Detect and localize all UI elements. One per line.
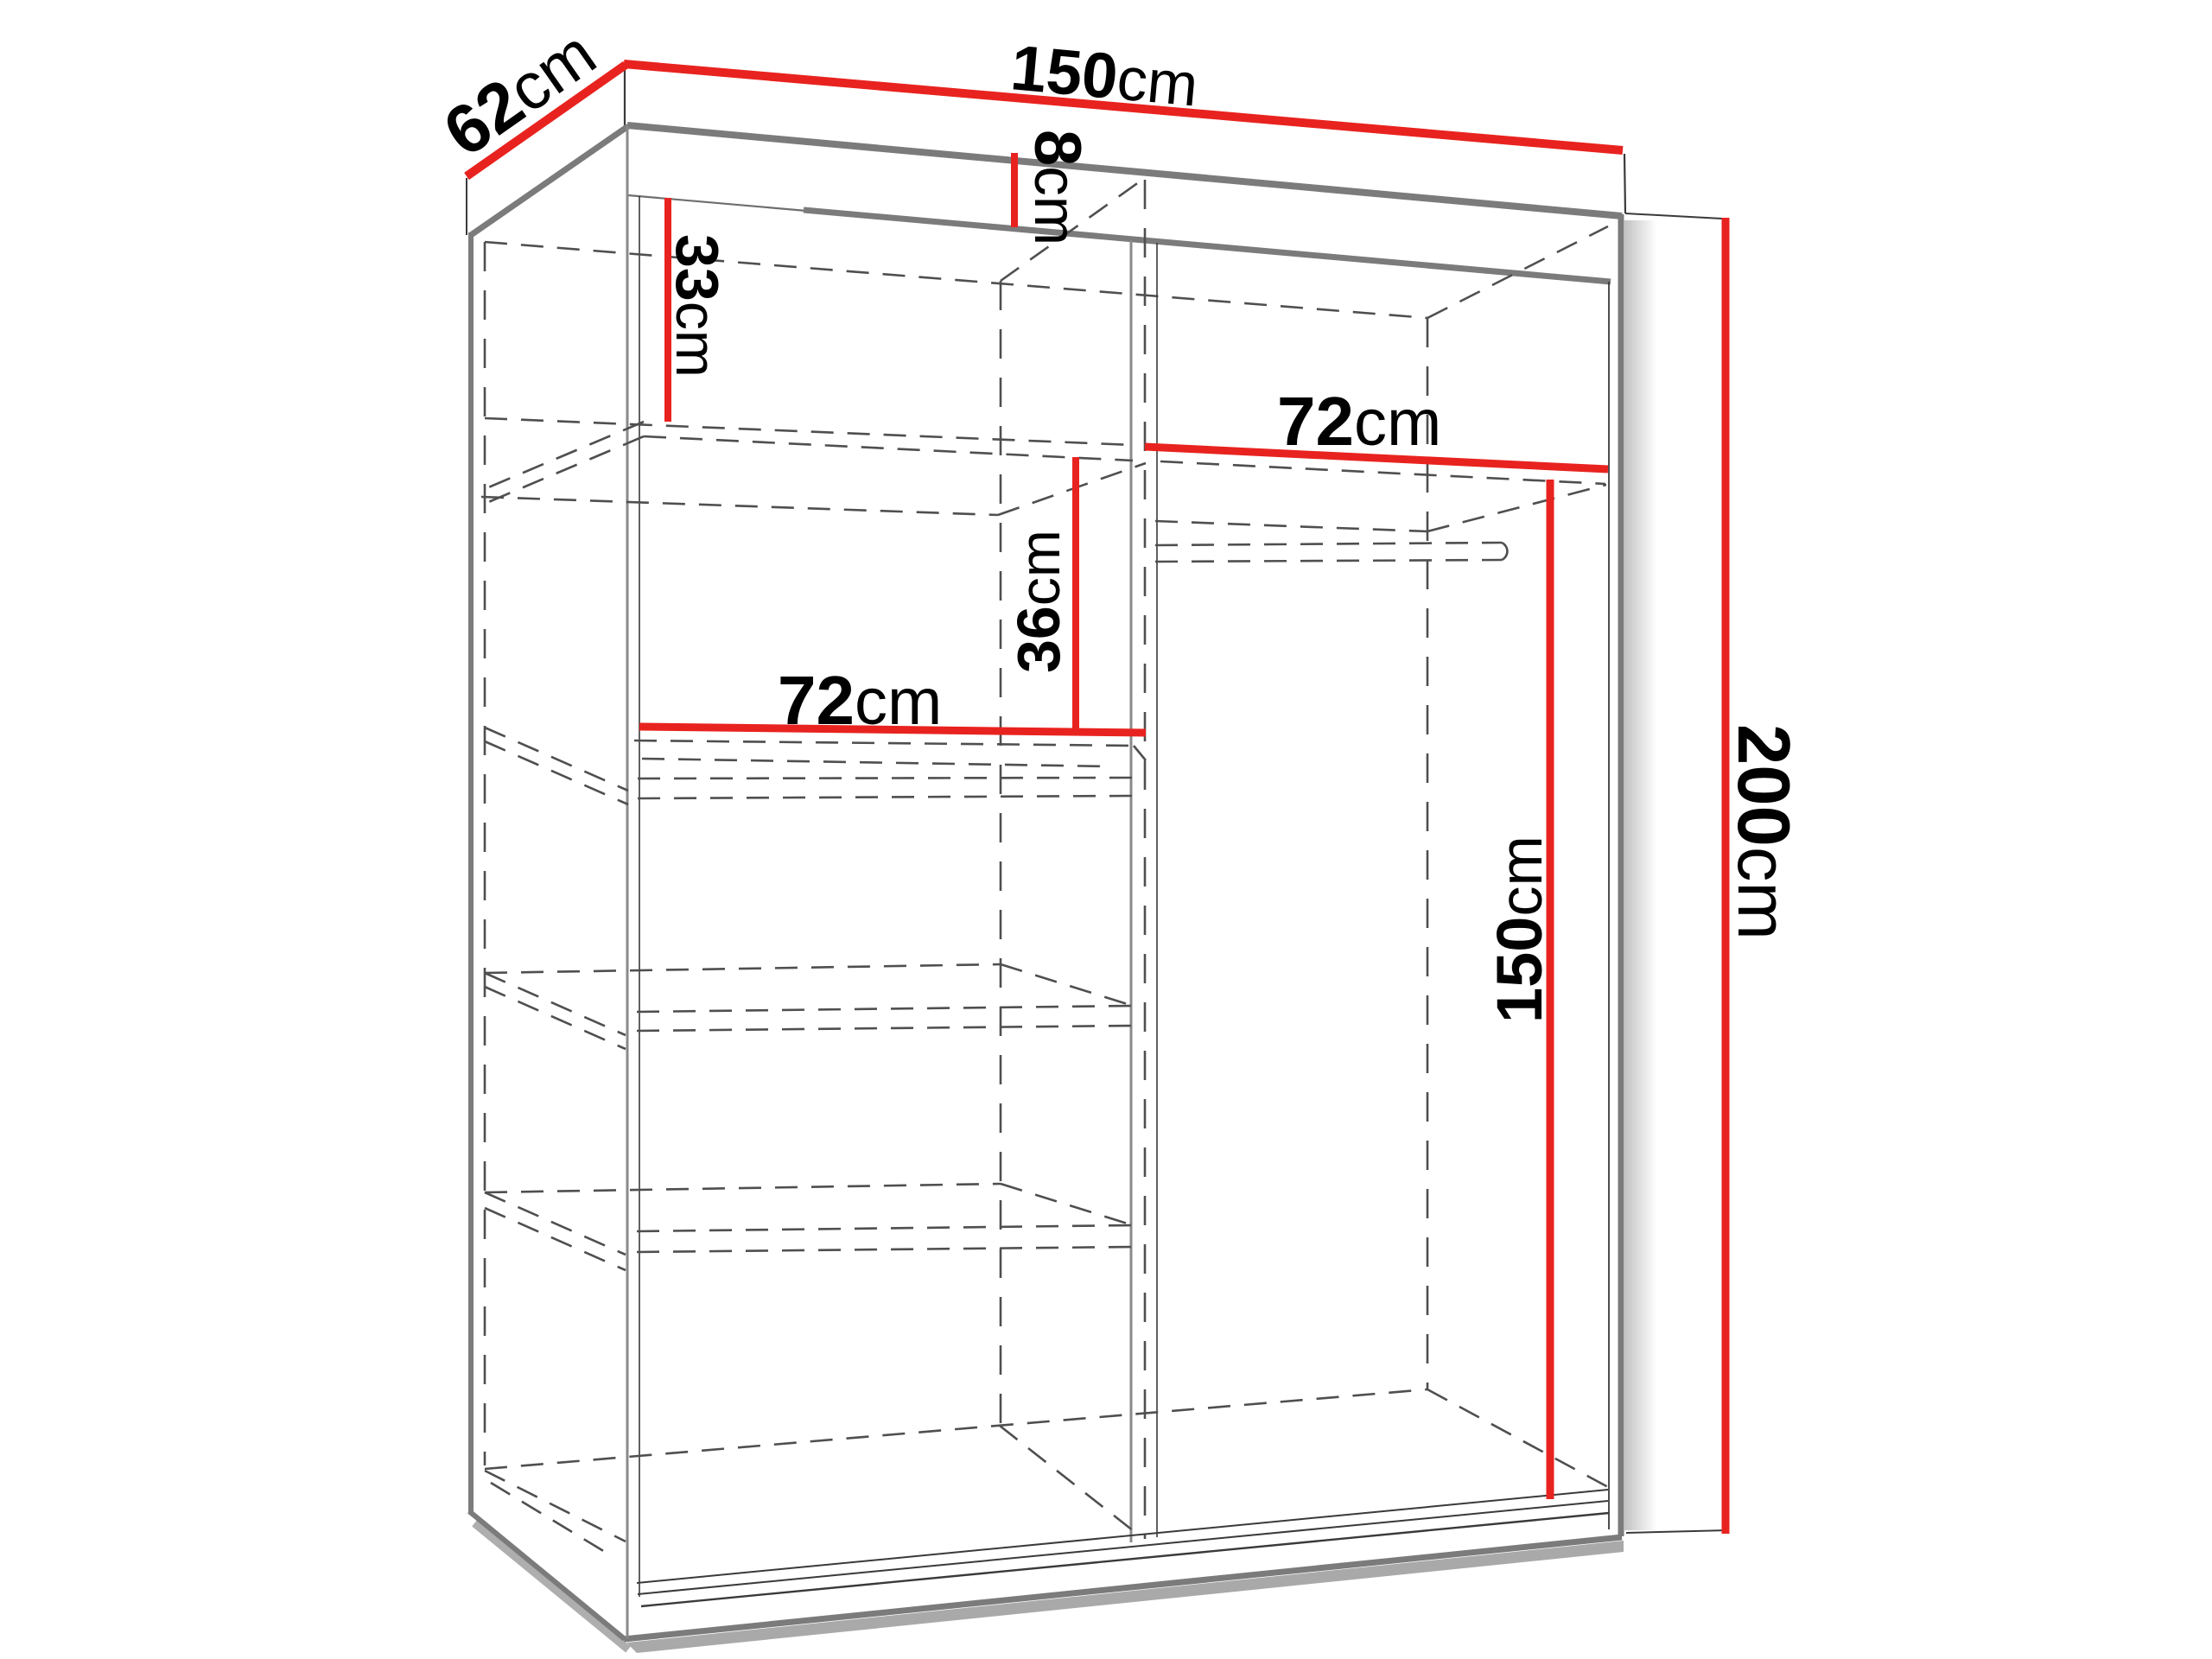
svg-text:8cm: 8cm [1020,130,1094,245]
svg-text:33cm: 33cm [664,234,731,378]
svg-text:200cm: 200cm [1722,724,1804,940]
svg-text:150cm: 150cm [1008,31,1201,119]
svg-text:36cm: 36cm [1005,530,1072,673]
svg-text:62cm: 62cm [430,14,609,171]
svg-text:150cm: 150cm [1484,836,1555,1023]
svg-text:72cm: 72cm [1277,383,1441,460]
svg-text:72cm: 72cm [778,662,942,739]
